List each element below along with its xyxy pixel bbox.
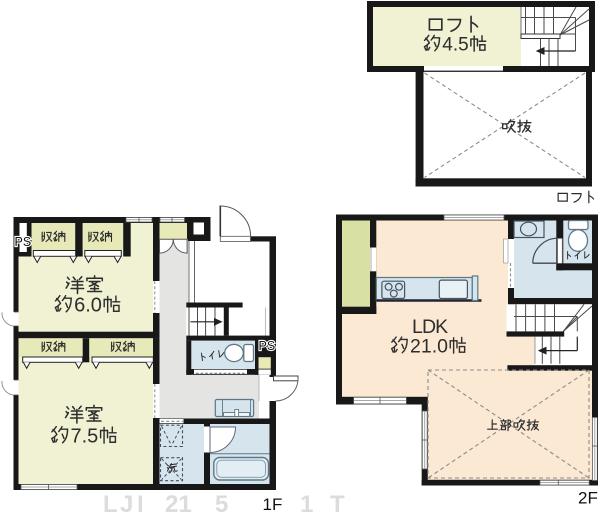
svg-text:21.0: 21.0	[410, 336, 448, 358]
svg-text:7.5: 7.5	[71, 426, 99, 448]
svg-text:I: I	[137, 491, 144, 512]
svg-text:L: L	[103, 491, 118, 512]
svg-text:21: 21	[165, 491, 192, 512]
svg-text:4.5: 4.5	[442, 35, 468, 56]
svg-text:PS: PS	[15, 235, 32, 249]
svg-text:PS: PS	[259, 339, 276, 353]
svg-text:1: 1	[300, 491, 313, 512]
svg-text:2F: 2F	[578, 489, 598, 508]
svg-text:5: 5	[215, 491, 228, 512]
svg-text:6.0: 6.0	[74, 295, 102, 317]
svg-text:T: T	[330, 491, 345, 512]
svg-text:J: J	[120, 491, 133, 512]
svg-text:1F: 1F	[263, 495, 283, 512]
